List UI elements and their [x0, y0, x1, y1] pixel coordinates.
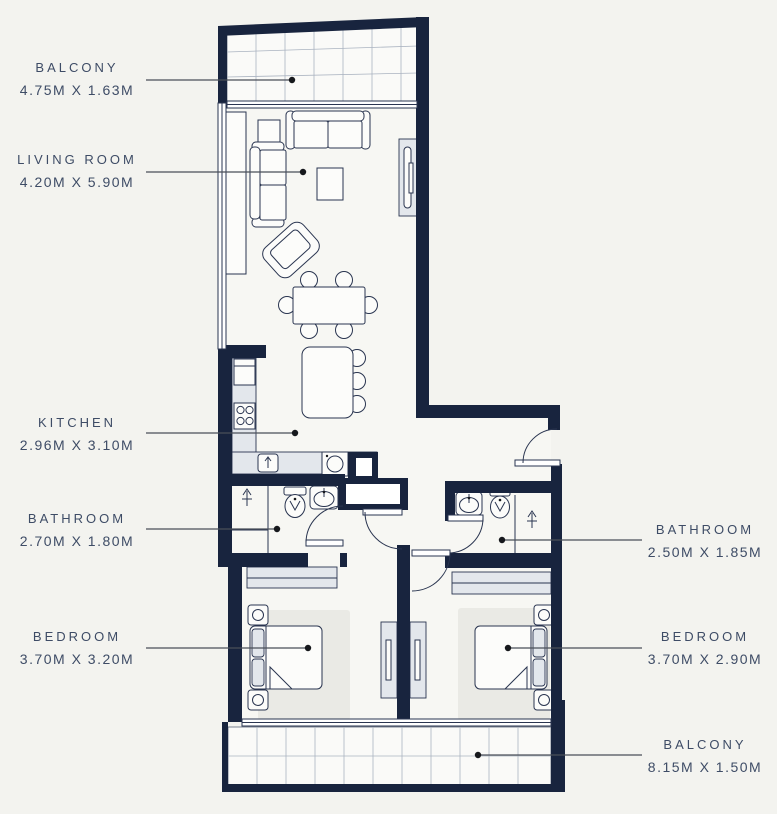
- room-dimensions: 2.70M X 1.80M: [2, 534, 152, 548]
- room-name: BATHROOM: [2, 512, 152, 526]
- room-name: BALCONY: [2, 61, 152, 75]
- washbasin-icon: [456, 492, 482, 515]
- service-duct: [348, 452, 378, 478]
- console-cabinet: [226, 112, 246, 274]
- label-bathroom-right: BATHROOM 2.50M X 1.85M: [640, 523, 770, 559]
- label-living-room: LIVING ROOM 4.20M X 5.90M: [2, 153, 152, 189]
- label-balcony-bottom: BALCONY 8.15M X 1.50M: [640, 738, 770, 774]
- hall-closet: [338, 478, 408, 510]
- label-balcony-top: BALCONY 4.75M X 1.63M: [2, 61, 152, 97]
- washing-machine: [322, 452, 348, 476]
- floorplan-page: { "labels": { "left": [ {"name": "BALCON…: [0, 0, 777, 814]
- room-name: BATHROOM: [640, 523, 770, 537]
- room-dimensions: 3.70M X 3.20M: [2, 652, 152, 666]
- toilet-icon: [490, 489, 510, 518]
- bottom-balcony: [227, 727, 551, 785]
- room-name: BEDROOM: [2, 630, 152, 644]
- side-table: [258, 120, 280, 142]
- window-wall: [218, 103, 226, 349]
- toilet-icon: [284, 487, 306, 518]
- room-dimensions: 2.50M X 1.85M: [640, 545, 770, 559]
- bedroom-right-furniture: [452, 572, 554, 720]
- room-name: BEDROOM: [640, 630, 770, 644]
- bed: [250, 626, 322, 689]
- room-dimensions: 2.96M X 3.10M: [2, 438, 152, 452]
- label-bedroom-left: BEDROOM 3.70M X 3.20M: [2, 630, 152, 666]
- floorplan-drawing: [0, 0, 777, 814]
- room-dimensions: 4.20M X 5.90M: [2, 175, 152, 189]
- sofa-small: [250, 142, 286, 227]
- coffee-table: [317, 168, 343, 200]
- nightstand: [248, 690, 268, 710]
- stove: [234, 403, 255, 429]
- nightstand: [248, 605, 268, 625]
- room-name: KITCHEN: [2, 416, 152, 430]
- room-dimensions: 8.15M X 1.50M: [640, 760, 770, 774]
- label-bedroom-right: BEDROOM 3.70M X 2.90M: [640, 630, 770, 666]
- sofa-large: [286, 111, 370, 149]
- kitchen-sink: [258, 454, 278, 472]
- island-set: [302, 347, 366, 418]
- room-dimensions: 3.70M X 2.90M: [640, 652, 770, 666]
- label-kitchen: KITCHEN 2.96M X 3.10M: [2, 416, 152, 452]
- label-bathroom-left: BATHROOM 2.70M X 1.80M: [2, 512, 152, 548]
- washbasin-icon: [310, 486, 338, 509]
- tv-unit: [399, 139, 418, 216]
- room-dimensions: 4.75M X 1.63M: [2, 83, 152, 97]
- room-name: BALCONY: [640, 738, 770, 752]
- room-name: LIVING ROOM: [2, 153, 152, 167]
- bed: [475, 626, 547, 689]
- fridge: [234, 359, 255, 385]
